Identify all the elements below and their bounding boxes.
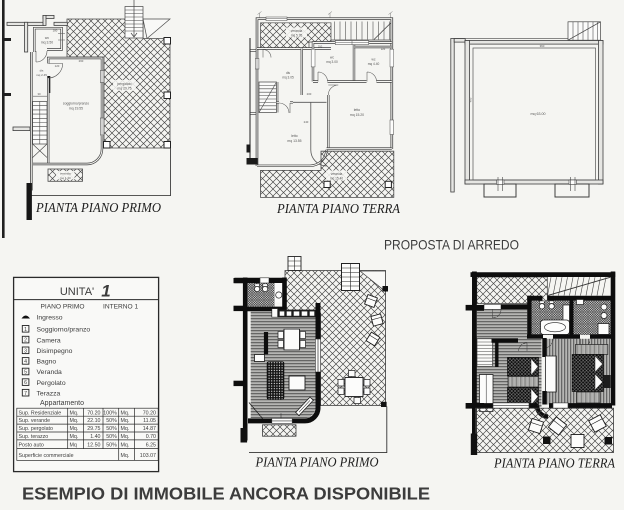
svg-text:pergolato: pergolato: [117, 82, 131, 86]
svg-text:11.05: 11.05: [143, 418, 156, 424]
svg-text:mq 3.00: mq 3.00: [326, 60, 338, 64]
svg-text:Mq.: Mq.: [121, 434, 130, 440]
svg-text:Sup. verande: Sup. verande: [19, 418, 51, 424]
svg-text:3: 3: [24, 348, 27, 354]
svg-text:Mq: Mq: [70, 442, 77, 448]
svg-text:100%: 100%: [103, 410, 117, 416]
svg-text:120: 120: [55, 64, 60, 68]
svg-text:mq 1.40: mq 1.40: [60, 176, 71, 180]
svg-text:dis: dis: [286, 71, 290, 75]
svg-text:1.40: 1.40: [90, 434, 100, 440]
svg-text:360: 360: [540, 44, 545, 48]
svg-text:PIANO PRIMO: PIANO PRIMO: [41, 304, 85, 311]
svg-text:Mq.: Mq.: [121, 426, 130, 432]
svg-text:6.25: 6.25: [146, 442, 156, 448]
svg-text:50%: 50%: [106, 442, 117, 448]
svg-text:4: 4: [24, 359, 27, 365]
svg-text:Appartamento: Appartamento: [40, 400, 84, 407]
svg-text:mq 4.40: mq 4.40: [368, 62, 380, 66]
svg-text:Mq.: Mq.: [121, 442, 130, 448]
svg-text:Soggiorno/pranzo: Soggiorno/pranzo: [37, 327, 91, 334]
svg-text:465: 465: [469, 97, 473, 102]
svg-text:Mq.: Mq.: [70, 426, 79, 432]
svg-text:260: 260: [79, 59, 84, 63]
svg-text:240: 240: [304, 120, 309, 124]
svg-text:wc: wc: [330, 56, 334, 60]
svg-text:mq 29.75: mq 29.75: [117, 87, 131, 91]
svg-text:letto: letto: [291, 134, 298, 138]
svg-text:letto: letto: [354, 108, 361, 112]
svg-text:Sup. pergolato: Sup. pergolato: [19, 426, 54, 432]
svg-text:2: 2: [24, 338, 27, 344]
svg-text:200: 200: [307, 92, 312, 96]
svg-text:UNITA': UNITA': [60, 286, 94, 298]
svg-text:12.50: 12.50: [87, 442, 100, 448]
svg-text:Mq.: Mq.: [121, 418, 130, 424]
svg-text:Mq.: Mq.: [121, 453, 130, 459]
svg-text:Disimpegno: Disimpegno: [37, 348, 73, 355]
svg-text:Mq.: Mq.: [70, 418, 79, 424]
svg-text:14.87: 14.87: [143, 426, 156, 432]
svg-text:wc: wc: [45, 36, 49, 40]
svg-text:mq 2.45: mq 2.45: [36, 73, 47, 77]
svg-text:Mq.: Mq.: [70, 410, 79, 416]
svg-text:mq 13.55: mq 13.55: [287, 139, 301, 143]
svg-text:Terazza: Terazza: [37, 390, 61, 397]
svg-text:0.70: 0.70: [146, 434, 156, 440]
svg-text:veranda: veranda: [331, 172, 343, 176]
svg-text:mq 15.40: mq 15.40: [330, 176, 344, 180]
svg-text:180: 180: [53, 29, 58, 33]
svg-text:Sup. Residenziale: Sup. Residenziale: [19, 410, 62, 416]
svg-text:Bagno: Bagno: [37, 359, 57, 366]
svg-text:soggiorno/pranzo: soggiorno/pranzo: [63, 102, 89, 106]
svg-text:PIANTA PIANO PRIMO: PIANTA PIANO PRIMO: [35, 201, 161, 216]
svg-text:mq 19.55: mq 19.55: [69, 106, 83, 110]
svg-text:Superficie commerciale: Superficie commerciale: [19, 453, 74, 459]
svg-text:50%: 50%: [106, 426, 117, 432]
svg-text:Pergolato: Pergolato: [37, 380, 66, 387]
svg-text:7: 7: [24, 391, 27, 397]
svg-text:70.20: 70.20: [143, 410, 156, 416]
svg-text:ESEMPIO DI IMMOBILE ANCORA DIS: ESEMPIO DI IMMOBILE ANCORA DISPONIBILE: [22, 484, 430, 504]
svg-text:50%: 50%: [106, 434, 117, 440]
svg-text:5: 5: [24, 370, 27, 376]
svg-text:Sup. terazzo: Sup. terazzo: [19, 434, 49, 440]
svg-text:29.75: 29.75: [87, 426, 100, 432]
svg-text:Ingresso: Ingresso: [37, 315, 63, 322]
svg-text:PIANTA PIANO PRIMO: PIANTA PIANO PRIMO: [255, 456, 379, 471]
svg-text:Mq.: Mq.: [121, 410, 130, 416]
svg-text:Mq.: Mq.: [70, 434, 79, 440]
svg-text:Camera: Camera: [37, 337, 61, 344]
svg-text:103.07: 103.07: [140, 453, 156, 459]
svg-text:6: 6: [24, 380, 27, 386]
svg-text:mq 5.95: mq 5.95: [291, 33, 303, 37]
svg-text:1: 1: [101, 282, 110, 301]
svg-text:200: 200: [318, 45, 323, 49]
svg-text:Veranda: Veranda: [37, 369, 63, 376]
svg-text:70.20: 70.20: [87, 410, 100, 416]
svg-text:mq 63.00: mq 63.00: [531, 112, 546, 116]
svg-text:PIANTA PIANO TERRA: PIANTA PIANO TERRA: [276, 202, 400, 217]
svg-text:Posto auto: Posto auto: [19, 442, 44, 448]
svg-text:veranda: veranda: [291, 29, 303, 33]
svg-text:30: 30: [37, 92, 41, 96]
svg-text:wc: wc: [372, 58, 376, 62]
svg-text:1: 1: [24, 327, 27, 333]
svg-text:mq 3.50: mq 3.50: [41, 41, 53, 45]
svg-text:22.10: 22.10: [87, 418, 100, 424]
svg-text:PIANTA PIANO TERRA: PIANTA PIANO TERRA: [493, 457, 615, 472]
svg-text:mq 3.05: mq 3.05: [282, 76, 294, 80]
svg-text:50%: 50%: [106, 418, 117, 424]
svg-text:PROPOSTA DI ARREDO: PROPOSTA DI ARREDO: [384, 237, 519, 253]
svg-text:INTERNO 1: INTERNO 1: [103, 304, 139, 311]
svg-text:mq 15.20: mq 15.20: [350, 113, 364, 117]
